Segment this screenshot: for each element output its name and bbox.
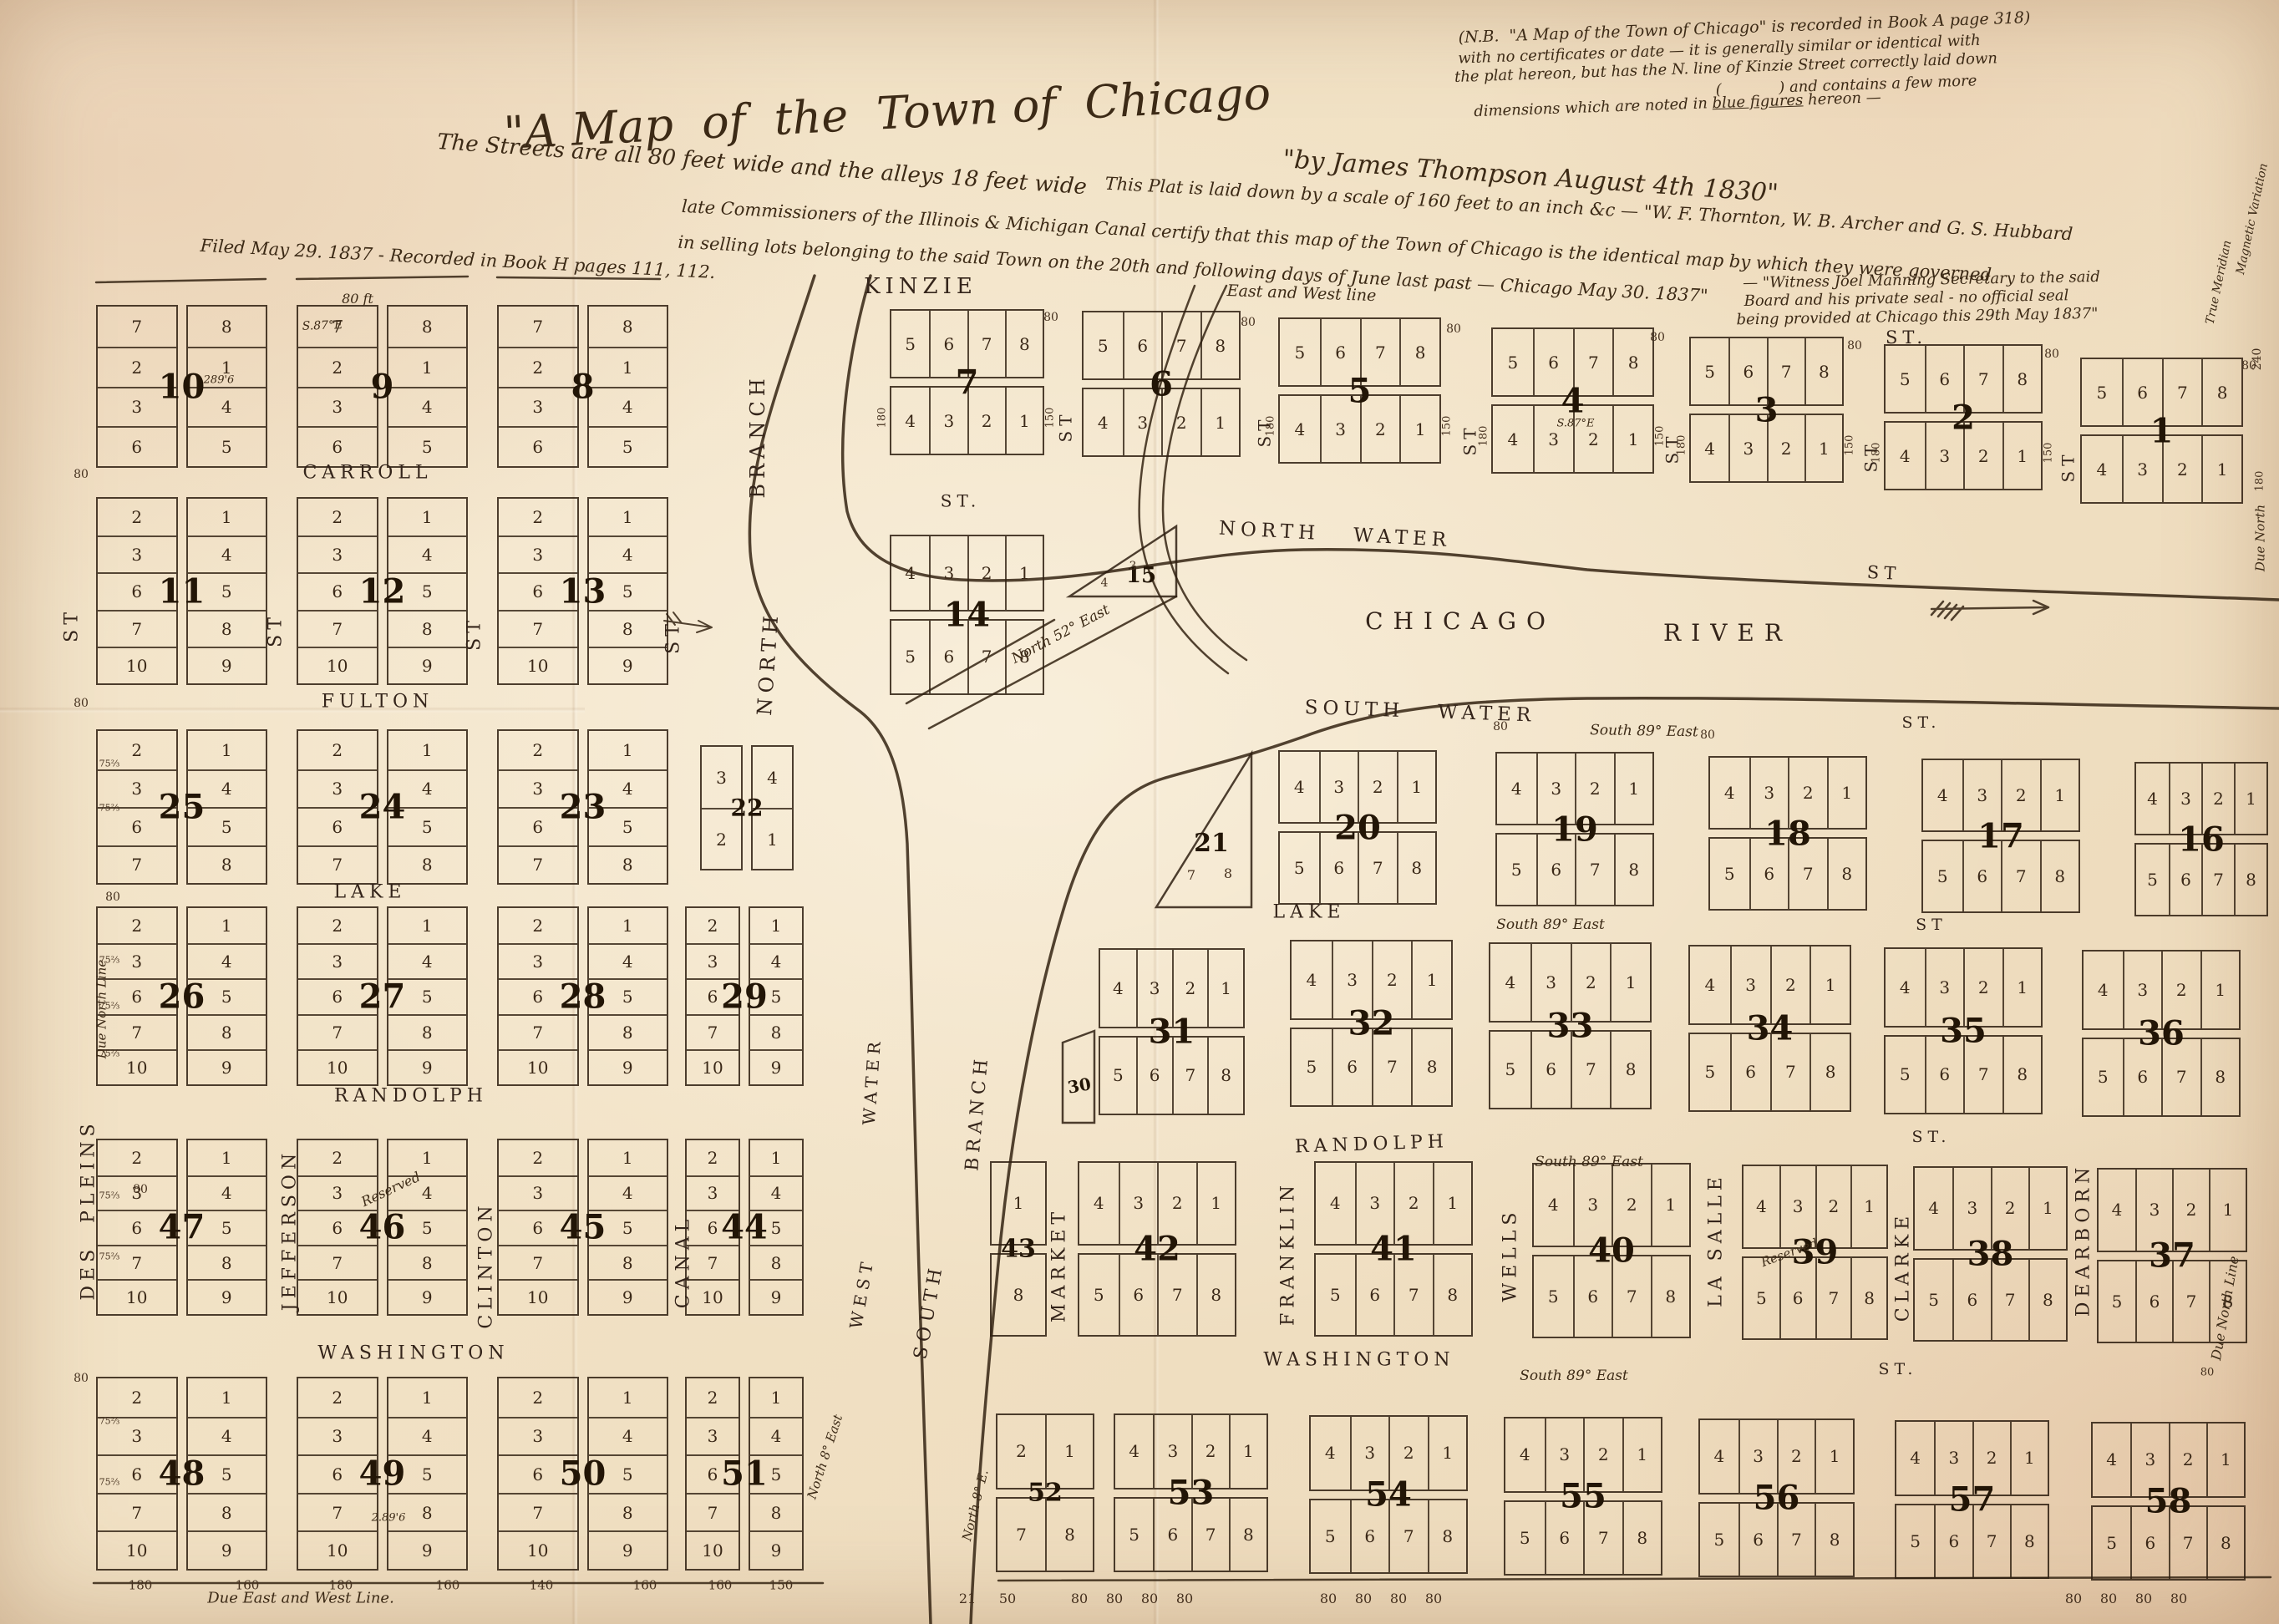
lot: 4 — [1896, 1422, 1934, 1495]
lot: 10 — [499, 647, 577, 683]
lot: 8 — [589, 845, 667, 884]
lot: 5 — [1700, 1504, 1738, 1576]
block-number: 26 — [159, 977, 206, 1016]
lot: 1 — [1622, 1418, 1662, 1491]
block-7: 567843217 — [890, 309, 1044, 455]
lot: 2 — [298, 499, 377, 535]
lot: 3 — [499, 943, 577, 978]
lot: 4 — [1311, 1417, 1350, 1490]
block-49: 2367101458949 — [297, 1377, 468, 1571]
lot: 5 — [1710, 839, 1749, 909]
lot: 5 — [1079, 1255, 1119, 1336]
street-st-v4: ST — [662, 619, 683, 654]
lot: 8 — [388, 610, 467, 647]
block-6: 567843216 — [1082, 311, 1241, 457]
block-2: 567843212 — [1884, 344, 2043, 490]
lot: 4 — [388, 1417, 467, 1455]
street-kinzie: KINZIE — [864, 275, 977, 300]
lot: 8 — [1200, 312, 1240, 378]
depth-25-2: 75⅔ — [99, 804, 120, 815]
street-randolph-s: RANDOLPH — [1295, 1131, 1449, 1158]
lot: 3 — [499, 1175, 577, 1210]
lot: 8 — [589, 1014, 667, 1049]
lot: 9 — [589, 647, 667, 683]
lot: 5 — [1493, 329, 1533, 395]
block-32: 4321567832 — [1290, 940, 1453, 1107]
lot: 4 — [1691, 415, 1728, 481]
lot: 6 — [499, 426, 577, 466]
lot: 8 — [188, 1245, 266, 1280]
block-number: 40 — [1588, 1231, 1635, 1271]
lot: 8 — [1433, 1255, 1472, 1336]
lot: 4 — [1534, 1165, 1573, 1246]
depth-48-1: 75⅔ — [99, 1417, 120, 1428]
block-22: 324122 — [700, 745, 794, 870]
lot: 5 — [2099, 1261, 2135, 1342]
block-number: 4 — [1561, 381, 1585, 420]
dim-180-redge: 180 — [2255, 471, 2267, 492]
street-canal: CANAL — [673, 1215, 693, 1308]
lot: 9 — [750, 1279, 802, 1314]
lot: 10 — [687, 1530, 739, 1569]
street-st-e1: ST — [1057, 409, 1076, 442]
street-la-salle: LA SALLE — [1705, 1172, 1726, 1307]
street-jefferson: JEFFERSON — [279, 1149, 300, 1311]
lot: 8 — [188, 307, 266, 347]
block-39: 4321567839 — [1742, 1165, 1888, 1340]
dim-150-e2: 150 — [2043, 443, 2056, 464]
dim-bw-4: 160 — [436, 1578, 460, 1592]
lot: 4 — [1084, 389, 1123, 455]
edge-magnetic-variation: Magnetic Variation — [2234, 162, 2271, 276]
lot: 8 — [1207, 1038, 1243, 1114]
block-14: 4321567814 — [890, 535, 1044, 695]
lot: 1 — [992, 1163, 1045, 1244]
street-west-water-west: WEST — [846, 1256, 878, 1331]
block-41: 4321567841 — [1314, 1161, 1473, 1337]
bearing-s89e-3: South 89° East — [1535, 1155, 1643, 1171]
block-36: 4321567836 — [2082, 950, 2241, 1117]
dim-80-s2: 80 — [1700, 728, 1715, 742]
lot: 6 — [298, 426, 377, 466]
block-number: 25 — [159, 788, 206, 827]
lot: 8 — [1005, 311, 1043, 377]
block-number: 48 — [159, 1454, 206, 1494]
lot: 7 — [298, 1014, 377, 1049]
dim-80-k5: 80 — [1847, 339, 1862, 353]
street-randolph-w: RANDOLPH — [334, 1085, 488, 1106]
lot: 5 — [2084, 1039, 2123, 1116]
dim-bw-1: 180 — [129, 1578, 153, 1592]
lot: 5 — [1534, 1256, 1573, 1337]
lot: 2 — [98, 1140, 176, 1175]
lot: 4 — [1923, 760, 1962, 830]
lot: 8 — [1610, 1032, 1650, 1109]
dim-80-k1: 80 — [1043, 311, 1058, 324]
lot: 1 — [2002, 949, 2042, 1026]
lot: 5 — [1886, 1037, 1925, 1114]
block-number: 23 — [560, 788, 607, 827]
lot: 2 — [499, 908, 577, 943]
dim-80-k3: 80 — [1446, 322, 1461, 336]
dim-80-l3: 80 — [105, 891, 120, 904]
lot: 1 — [1196, 1163, 1236, 1244]
block-16: 4321567816 — [2134, 762, 2268, 916]
lot: 7 — [499, 845, 577, 884]
lot: 8 — [1229, 1499, 1266, 1571]
street-clinton: CLINTON — [475, 1200, 496, 1328]
lot: 8 — [1196, 1255, 1236, 1336]
lot: 7 — [98, 1014, 176, 1049]
lot: 8 — [188, 610, 266, 647]
block-number: 46 — [359, 1208, 406, 1247]
block-number: 19 — [1551, 809, 1598, 849]
dim-150-e5: 150 — [1442, 416, 1454, 437]
block-18: 4321567818 — [1708, 756, 1867, 911]
lot: 1 — [2201, 436, 2241, 502]
block-25: 2367145825 — [96, 729, 267, 885]
street-west-water-water: WATER — [860, 1036, 885, 1125]
lot: 9 — [750, 1530, 802, 1569]
lot: 4 — [1700, 1420, 1738, 1493]
lot: 1 — [2002, 423, 2042, 489]
block-number: 53 — [1168, 1474, 1215, 1513]
lot: 1 — [1815, 1420, 1853, 1493]
block-column: 8145 — [387, 305, 469, 468]
lot: 5 — [2082, 359, 2122, 425]
lot: 8 — [2206, 1507, 2244, 1580]
lot: 8 — [2200, 1039, 2240, 1116]
lot: 1 — [188, 1378, 266, 1417]
block-number: 33 — [1547, 1007, 1594, 1046]
lot: 5 — [1896, 1505, 1934, 1578]
lot-15-4: 4 — [1101, 576, 1109, 590]
lot: 4 — [188, 1417, 266, 1455]
dim-80-s1: 80 — [1493, 720, 1508, 733]
lot: 7 — [499, 610, 577, 647]
lot: 8 — [589, 1493, 667, 1531]
lot: 7 — [98, 845, 176, 884]
block-28: 2367101458928 — [497, 906, 668, 1086]
lot: 4 — [1493, 406, 1533, 472]
block-50: 2367101458950 — [497, 1377, 668, 1571]
lot: 7 — [298, 1493, 377, 1531]
nb-line-5: dimensions which are noted in blue figur… — [1474, 89, 1881, 121]
lot: 1 — [1207, 950, 1243, 1027]
lot: 1 — [1005, 388, 1043, 454]
lot: 3 — [98, 535, 176, 572]
block-57: 4321567857 — [1895, 1420, 2049, 1579]
street-clarke: CLARKE — [1892, 1211, 1913, 1322]
block-number: 43 — [1001, 1235, 1036, 1264]
block-20: 4321567820 — [1278, 750, 1437, 905]
block-number: 38 — [1967, 1235, 2014, 1274]
block-10: 7236814510 — [96, 305, 267, 468]
block-number: 29 — [721, 977, 768, 1016]
dim-bs-a2: 80 — [1106, 1591, 1123, 1606]
lot: 4 — [589, 1175, 667, 1210]
block-number: 45 — [560, 1208, 607, 1247]
lot: 5 — [1115, 1499, 1153, 1571]
lot: 1 — [589, 1140, 667, 1175]
lot: 4 — [1280, 396, 1320, 462]
lot: 1 — [1399, 396, 1439, 462]
lot: 5 — [1505, 1502, 1545, 1575]
lot: 10 — [687, 1279, 739, 1314]
lot: 3 — [499, 1417, 577, 1455]
lot: 1 — [2040, 760, 2079, 830]
lot: 2 — [499, 347, 577, 387]
lot: 4 — [388, 535, 467, 572]
lot: 8 — [388, 1014, 467, 1049]
block-1: 567843211 — [2080, 358, 2243, 504]
lot: 5 — [891, 311, 929, 377]
lot: 9 — [188, 1049, 266, 1084]
lot: 4 — [750, 943, 802, 978]
lot: 4 — [2084, 952, 2123, 1028]
block-12: 2367101458912 — [297, 497, 468, 685]
street-franklin: FRANKLIN — [1277, 1180, 1298, 1326]
lot: 2 — [499, 1140, 577, 1175]
block-55: 4321567855 — [1504, 1417, 1662, 1576]
lot: 1 — [1229, 1415, 1266, 1488]
lot: 1 — [388, 1378, 467, 1417]
lot: 8 — [2201, 359, 2241, 425]
street-lake-w: LAKE — [334, 881, 407, 902]
lot: 1 — [1651, 1165, 1690, 1246]
filed-note: Filed May 29. 1837 - Recorded in Book H … — [200, 236, 716, 282]
lot: 10 — [499, 1279, 577, 1314]
depth-47-1: 75⅔ — [99, 1191, 120, 1202]
lot: 8 — [1428, 1500, 1467, 1573]
street-des-pleins: DES PLEINS — [78, 1119, 99, 1300]
dim-150-e7: 150 — [1045, 408, 1058, 429]
depth-25-1: 75⅔ — [99, 759, 120, 770]
lot: 4 — [1886, 949, 1925, 1026]
lot: 9 — [188, 1279, 266, 1314]
block-number: 32 — [1348, 1004, 1395, 1043]
lot: 8 — [750, 1014, 802, 1049]
block-43: 1843 — [990, 1161, 1047, 1337]
block-23: 2367145823 — [497, 729, 668, 885]
lot: 4 — [388, 387, 467, 427]
lot: 7 — [98, 1493, 176, 1531]
lot: 1 — [388, 908, 467, 943]
lot: 4 — [1744, 1166, 1779, 1247]
lot: 8 — [1612, 329, 1652, 395]
dim-bs-c4: 80 — [2170, 1591, 2187, 1606]
dim-80-l5: 80 — [74, 1372, 89, 1385]
street-market: MARKET — [1048, 1207, 1069, 1322]
river-south-branch-south: SOUTH — [911, 1262, 948, 1361]
lot: 5 — [1744, 1258, 1779, 1339]
edge-due-north: Due North — [2253, 505, 2267, 571]
block-4: 567843214 — [1491, 327, 1654, 474]
lot: 4 — [750, 1175, 802, 1210]
dim-180-e5: 180 — [1266, 416, 1278, 437]
lot: 3 — [687, 1175, 739, 1210]
lot: 8 — [1809, 1034, 1850, 1111]
lot: 8 — [1827, 839, 1866, 909]
lot: 8 — [1614, 835, 1653, 905]
lot: 5 — [1311, 1500, 1350, 1573]
lot: 3 — [298, 387, 377, 427]
block-number: 55 — [1560, 1477, 1606, 1516]
lot: 9 — [388, 1279, 467, 1314]
lot: 10 — [98, 1530, 176, 1569]
lot: 7 — [98, 307, 176, 347]
block-29: 2367101458929 — [685, 906, 804, 1086]
lot: 1 — [1850, 1166, 1886, 1247]
lot: 4 — [1886, 423, 1925, 489]
dim-180-e2: 180 — [1871, 443, 1884, 464]
depth-26-3: 75⅔ — [99, 1049, 120, 1060]
dim-80-k2: 80 — [1241, 316, 1256, 329]
lot: 8 — [388, 1245, 467, 1280]
street-washington-w: WASHINGTON — [317, 1342, 509, 1363]
street-lake-st: ST — [1916, 916, 1947, 935]
lot: 3 — [298, 943, 377, 978]
lot: 8 — [1850, 1258, 1886, 1339]
lot: 4 — [1915, 1168, 1952, 1249]
block-number: 27 — [359, 977, 406, 1016]
lot: 4 — [188, 535, 266, 572]
street-st-v3: ST — [464, 616, 485, 651]
dim-bs-b3: 80 — [1390, 1591, 1407, 1606]
lot: 3 — [499, 387, 577, 427]
lot: 4 — [1280, 752, 1319, 822]
lot: 1 — [188, 499, 266, 535]
lot: 4 — [2093, 1424, 2130, 1496]
lot: 5 — [1691, 338, 1728, 404]
lot: 8 — [1411, 1029, 1451, 1106]
lot: 4 — [1710, 758, 1749, 828]
lot: 8 — [750, 1245, 802, 1280]
block-58: 4321567858 — [2091, 1422, 2246, 1581]
street-north-water: NORTH WATER — [1218, 518, 1452, 552]
lot: 5 — [1084, 312, 1123, 378]
lot: 4 — [1316, 1163, 1355, 1244]
street-st-e6: ST — [2059, 449, 2079, 482]
lot: 4 — [2082, 436, 2122, 502]
block-number: 8 — [571, 367, 595, 406]
lot: 2 — [98, 908, 176, 943]
street-st-v2: ST — [265, 612, 286, 647]
lot: 1 — [388, 731, 467, 769]
lot: 1 — [188, 731, 266, 769]
block-52: 217852 — [996, 1413, 1094, 1572]
lot: 4 — [1115, 1415, 1153, 1488]
note-80ft: 80 ft — [342, 292, 373, 307]
river-north-branch-north: NORTH — [754, 611, 784, 717]
dim-bw-7: 160 — [708, 1578, 733, 1592]
river-south-branch-branch: BRANCH — [962, 1053, 992, 1172]
lot: 10 — [298, 1279, 377, 1314]
dim-150-e3: 150 — [1845, 435, 1857, 456]
lot: 2 — [298, 908, 377, 943]
lot: 1 — [388, 347, 467, 387]
block-number: 20 — [1334, 808, 1381, 847]
dim-bw-8: 150 — [769, 1578, 794, 1592]
lot: 7 — [687, 1014, 739, 1049]
block-47: 2367101458947 — [96, 1139, 267, 1316]
street-st-v1: ST — [61, 607, 82, 642]
lot: 8 — [2040, 841, 2079, 911]
block-number: 17 — [1977, 816, 2024, 855]
depth-26-1: 75⅔ — [99, 956, 120, 967]
block-27: 2367101458927 — [297, 906, 468, 1086]
block-number: 58 — [2145, 1482, 2192, 1521]
street-washington-s: WASHINGTON — [1263, 1349, 1454, 1370]
lot: 1 — [1612, 406, 1652, 472]
dim-bs-c2: 80 — [2100, 1591, 2117, 1606]
lot: 5 — [1316, 1255, 1355, 1336]
street-kinzie-st: ST. — [1886, 327, 1927, 348]
bearing-n8e-2: North 8° E. — [960, 1469, 992, 1543]
lot: 8 — [188, 1493, 266, 1531]
lot: 1 — [2234, 764, 2266, 834]
block-number: 49 — [359, 1454, 406, 1494]
lot: 4 — [1505, 1418, 1545, 1491]
lot: 8 — [589, 307, 667, 347]
block-5: 567843215 — [1278, 317, 1441, 464]
lot: 2 — [98, 499, 176, 535]
lot: 1 — [1804, 415, 1842, 481]
lot: 1 — [589, 499, 667, 535]
lot: 5 — [2136, 845, 2169, 915]
lot: 1 — [1411, 941, 1451, 1018]
lot: 8 — [992, 1255, 1045, 1336]
lot: 9 — [388, 647, 467, 683]
river-chicago: CHICAGO — [1365, 608, 1556, 635]
lot: 1 — [388, 499, 467, 535]
east-west-line-note: East and West line — [1226, 282, 1376, 306]
lot: 5 — [188, 426, 266, 466]
lot: 10 — [98, 647, 176, 683]
lot: 2 — [687, 908, 739, 943]
block-number: 14 — [944, 596, 991, 635]
dim-80-l1: 80 — [74, 468, 89, 481]
block-33: 4321567833 — [1489, 942, 1652, 1109]
lot: 5 — [2093, 1507, 2130, 1580]
block-number: 44 — [721, 1208, 768, 1247]
lot: 5 — [1886, 346, 1925, 412]
lot: 3 — [499, 535, 577, 572]
lot: 5 — [1923, 841, 1962, 911]
lot: 5 — [891, 621, 929, 694]
block-number: 9 — [371, 367, 394, 406]
lot: 1 — [1809, 946, 1850, 1023]
lot: 5 — [1100, 1038, 1136, 1114]
lot: 9 — [188, 647, 266, 683]
lot: 8 — [1622, 1502, 1662, 1575]
lot: 2 — [98, 1378, 176, 1417]
lot: 10 — [298, 1530, 377, 1569]
bearing-s89e-1: South 89° East — [1590, 723, 1698, 741]
dim-bs-21: 21 — [959, 1591, 976, 1606]
bearing-n8e-1: North 8° East — [805, 1413, 846, 1500]
block-45: 2367101458945 — [497, 1139, 668, 1316]
lot: 2 — [499, 1378, 577, 1417]
block-number: 41 — [1370, 1230, 1417, 1269]
street-wash-st: ST. — [1879, 1361, 1918, 1379]
block-number: 42 — [1134, 1230, 1180, 1269]
block-17: 4321567817 — [1921, 759, 2080, 913]
dim-bs-b2: 80 — [1355, 1591, 1372, 1606]
lot: 2 — [687, 1140, 739, 1175]
street-kinzie-st-2: ST. — [941, 492, 981, 511]
lot: 8 — [388, 307, 467, 347]
